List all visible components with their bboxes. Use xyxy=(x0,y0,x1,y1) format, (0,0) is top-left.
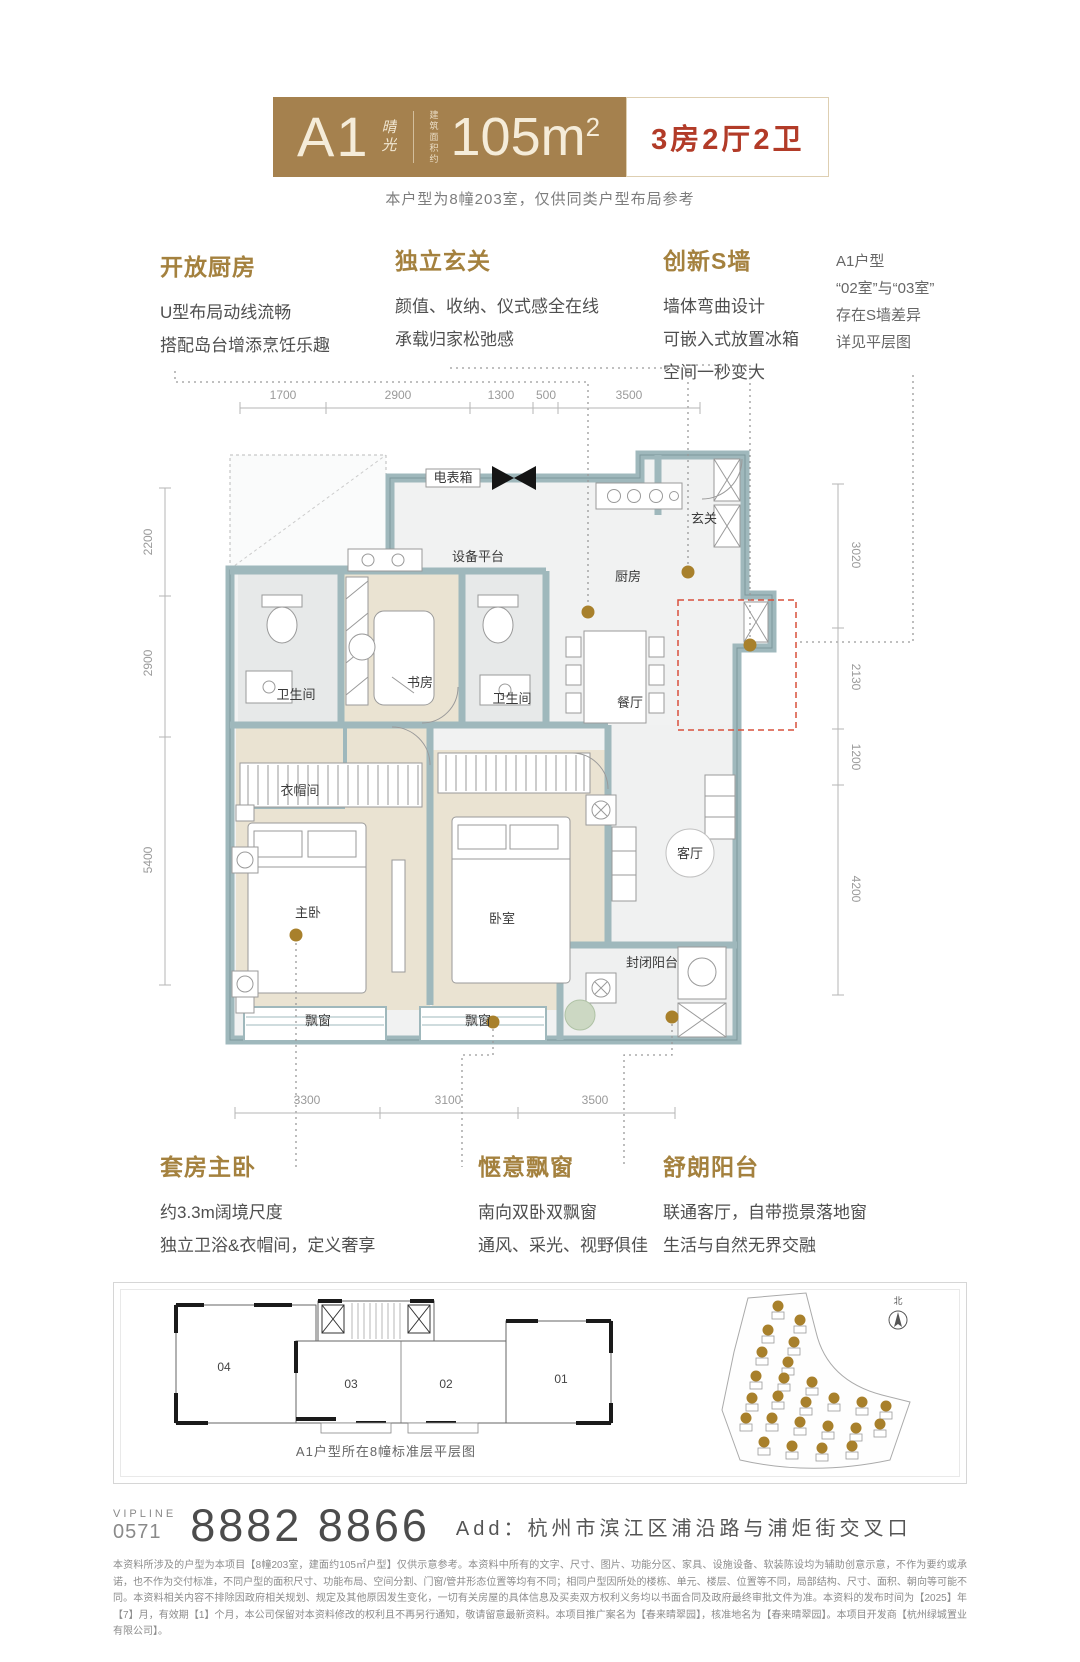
callout-dot xyxy=(682,566,695,579)
feature-line: U型布局动线流畅 xyxy=(160,296,330,329)
room-label: 卫生间 xyxy=(276,687,315,702)
feature-line: 墙体弯曲设计 xyxy=(663,290,799,323)
phone-number: 8882 8866 xyxy=(190,1500,430,1552)
feature-bay-window: 惬意飘窗 南向双卧双飘窗 通风、采光、视野俱佳 xyxy=(478,1148,648,1262)
feature-open-kitchen: 开放厨房 U型布局动线流畅 搭配岛台增添烹饪乐趣 xyxy=(160,248,330,362)
dim-label: 5400 xyxy=(141,846,155,873)
vipline-block: VIPLINE 0571 xyxy=(113,1508,176,1544)
side-note-line: A1户型 xyxy=(836,248,934,275)
dim-label: 2200 xyxy=(141,528,155,555)
feature-line: 联通客厅，自带揽景落地窗 xyxy=(663,1196,867,1229)
room-label: 书房 xyxy=(407,675,433,690)
room-label: 餐厅 xyxy=(617,695,643,710)
dim-label: 3020 xyxy=(849,542,863,569)
unit-label: 01 xyxy=(554,1372,568,1386)
dim-label: 3500 xyxy=(616,388,643,402)
contact-bar: VIPLINE 0571 8882 8866 Add：杭州市滨江区浦沿路与浦炬街… xyxy=(113,1500,967,1552)
room-label: 衣帽间 xyxy=(280,783,319,798)
feature-balcony: 舒朗阳台 联通客厅，自带揽景落地窗 生活与自然无界交融 xyxy=(663,1148,867,1262)
feature-title: 开放厨房 xyxy=(160,248,330,282)
feature-foyer: 独立玄关 颜值、收纳、仪式感全在线 承载归家松弛感 xyxy=(395,242,599,356)
feature-line: 可嵌入式放置冰箱 xyxy=(663,323,799,356)
unit-code: A1 xyxy=(297,109,370,165)
feature-line: 承载归家松弛感 xyxy=(395,323,599,356)
side-note-line: 存在S墙差异 xyxy=(836,302,934,329)
room-label: 卧室 xyxy=(489,911,515,926)
feature-line: 约3.3m阔境尺度 xyxy=(160,1196,375,1229)
diagram-box: 04030201 A1户型所在8幢标准层平层图 北 xyxy=(113,1282,967,1484)
area-prefix: 建筑面积约 xyxy=(428,110,441,165)
feature-title: 创新S墙 xyxy=(663,242,799,276)
fineprint: 本资料所涉及的户型为本项目【8幢203室，建面约105㎡户型】仅供示意参考。本资… xyxy=(113,1558,967,1641)
feature-line: 南向双卧双飘窗 xyxy=(478,1196,648,1229)
layout-badge: 3房2厅2卫 xyxy=(626,97,829,177)
callout-dot xyxy=(290,929,303,942)
dim-label: 4200 xyxy=(849,876,863,903)
feature-master-suite: 套房主卧 约3.3m阔境尺度 独立卫浴&衣帽间，定义奢享 xyxy=(160,1148,375,1262)
poster-page: A1 晴光 建筑面积约 105m2 3房2厅2卫 本户型为8幢203室，仅供同类… xyxy=(0,0,1080,1662)
room-label: 卫生间 xyxy=(492,691,531,706)
feature-line: 生活与自然无界交融 xyxy=(663,1229,867,1262)
feature-title: 惬意飘窗 xyxy=(478,1148,648,1182)
header: A1 晴光 建筑面积约 105m2 3房2厅2卫 xyxy=(273,97,829,177)
room-label: 厨房 xyxy=(615,569,641,584)
dim-label: 2900 xyxy=(385,388,412,402)
room-label: 客厅 xyxy=(677,846,703,861)
layout-text: 3房2厅2卫 xyxy=(651,116,804,158)
dim-label: 2900 xyxy=(141,649,155,676)
unit-label: 04 xyxy=(217,1360,231,1374)
callout-dot xyxy=(582,606,595,619)
area-code: 0571 xyxy=(113,1521,176,1544)
feature-title: 独立玄关 xyxy=(395,242,599,276)
building-plan: 04030201 xyxy=(146,1293,626,1438)
side-note-line: 详见平层图 xyxy=(836,329,934,356)
feature-line: 通风、采光、视野俱佳 xyxy=(478,1229,648,1262)
feature-title: 套房主卧 xyxy=(160,1148,375,1182)
plan-note: 本户型为8幢203室，仅供同类户型布局参考 xyxy=(0,188,1080,209)
building-plan-caption: A1户型所在8幢标准层平层图 xyxy=(146,1441,626,1460)
side-note: A1户型 “02室”与“03室” 存在S墙差异 详见平层图 xyxy=(836,248,934,356)
room-label: 主卧 xyxy=(295,905,321,920)
dim-label: 1200 xyxy=(849,744,863,771)
site-plan: 北 xyxy=(676,1290,926,1475)
unit-label: 02 xyxy=(439,1377,453,1391)
dim-label: 1300 xyxy=(488,388,515,402)
unit-label: 03 xyxy=(344,1377,358,1391)
north-compass-icon: 北 xyxy=(889,1296,907,1329)
room-label: 飘窗 xyxy=(305,1013,331,1028)
vipline-label: VIPLINE xyxy=(113,1508,176,1521)
dim-label: 1700 xyxy=(270,388,297,402)
room-label: 飘窗 xyxy=(465,1013,491,1028)
feature-line: 独立卫浴&衣帽间，定义奢享 xyxy=(160,1229,375,1262)
feature-title: 舒朗阳台 xyxy=(663,1148,867,1182)
dim-label: 3500 xyxy=(582,1093,609,1107)
room-label: 设备平台 xyxy=(452,549,504,564)
svg-text:北: 北 xyxy=(893,1296,902,1306)
feature-line: 颜值、收纳、仪式感全在线 xyxy=(395,290,599,323)
room-label: 封闭阳台 xyxy=(626,955,678,970)
side-note-line: “02室”与“03室” xyxy=(836,275,934,302)
room-label: 电表箱 xyxy=(433,470,472,485)
plant-icon xyxy=(565,1000,595,1030)
dim-label: 3300 xyxy=(294,1093,321,1107)
dim-label: 3100 xyxy=(435,1093,462,1107)
dim-label: 2130 xyxy=(849,664,863,691)
floor-plan: 电表箱设备平台厨房玄关卫生间书房卫生间餐厅衣帽间主卧卧室客厅封闭阳台飘窗飘窗17… xyxy=(0,355,1080,1225)
divider xyxy=(413,111,414,163)
callout-dot xyxy=(744,639,757,652)
room-label: 玄关 xyxy=(691,511,717,526)
unit-badge: A1 晴光 建筑面积约 105m2 xyxy=(273,97,626,177)
dim-label: 500 xyxy=(536,388,556,402)
area-value: 105m2 xyxy=(451,110,601,164)
address: Add：杭州市滨江区浦沿路与浦炬街交叉口 xyxy=(456,1512,912,1541)
unit-script-name: 晴光 xyxy=(378,119,399,155)
callout-dot xyxy=(666,1011,679,1024)
